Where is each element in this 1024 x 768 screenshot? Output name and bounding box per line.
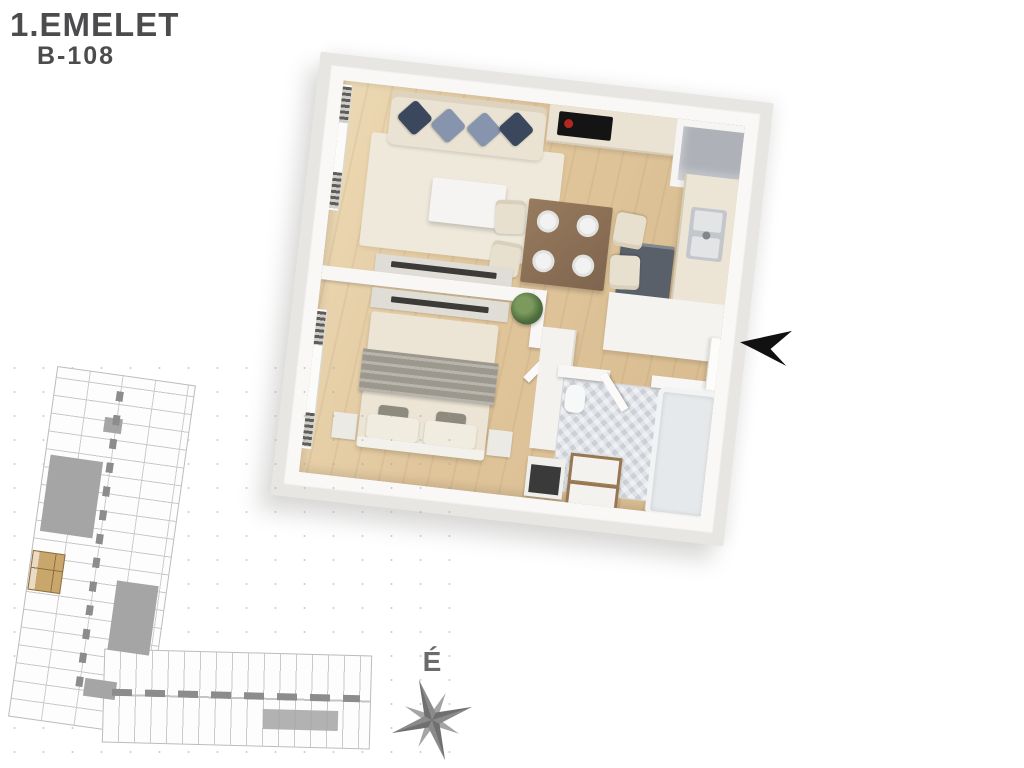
unit-label: B-108 — [37, 43, 179, 71]
compass-rose-icon — [390, 678, 474, 762]
courtyard — [40, 455, 103, 539]
page: { "header": { "floor_label": "1.EMELET",… — [0, 0, 1024, 768]
cooktop — [557, 111, 613, 141]
floor-label: 1.EMELET — [10, 8, 179, 43]
kitchen-sink — [686, 207, 728, 263]
cooktop-burner — [564, 119, 574, 129]
site-plan — [8, 366, 374, 762]
entrance-arrow-icon — [740, 330, 792, 368]
nightstand — [486, 429, 513, 458]
dining-table — [520, 198, 613, 291]
plate — [571, 254, 595, 278]
plate — [576, 214, 600, 238]
sofa-pillow — [498, 111, 535, 148]
highlighted-unit — [27, 550, 65, 594]
dining-chair — [612, 211, 648, 250]
compass-north-label: É — [386, 648, 478, 676]
dining-chair — [609, 255, 640, 290]
toilet — [564, 384, 587, 414]
plate — [531, 249, 555, 273]
dining-chair — [494, 199, 525, 234]
terrace-strip — [263, 709, 338, 731]
kitchen-cabinet-block — [603, 292, 725, 363]
sink-basin — [693, 210, 723, 233]
compass: É — [386, 648, 478, 764]
washing-machine — [524, 456, 566, 500]
header: 1.EMELET B-108 — [10, 8, 179, 70]
sofa-pillow — [396, 99, 433, 136]
sofa-pillow — [430, 107, 467, 144]
tv — [391, 296, 489, 313]
sofa-pillow — [466, 111, 503, 148]
plate — [536, 209, 560, 233]
washer-drum — [528, 464, 561, 495]
